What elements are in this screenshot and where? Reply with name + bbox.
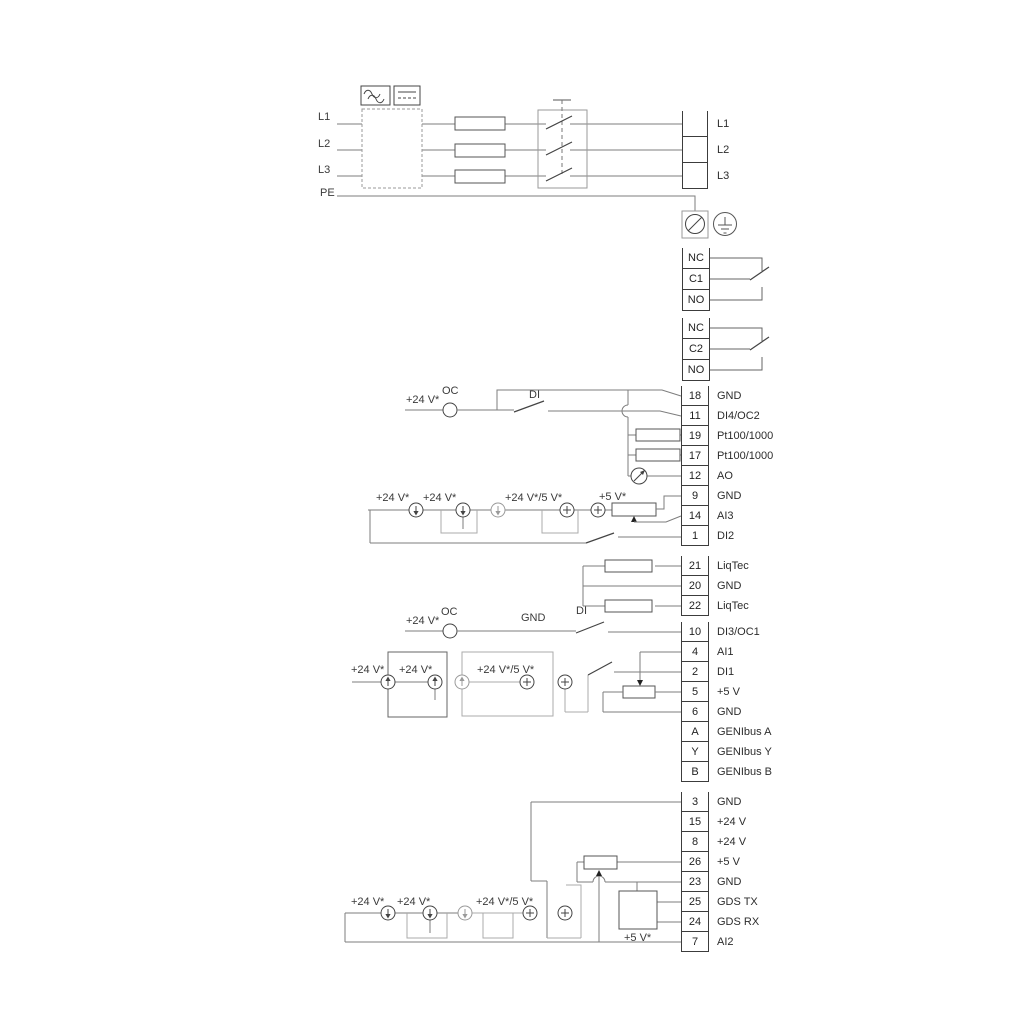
terminal-row: 6 GND (681, 702, 772, 722)
relay2-terminal-block: NC C2 NO (682, 318, 710, 381)
gds-sensor-box (619, 891, 657, 929)
terminal-number: A (681, 722, 709, 742)
terminal-row: 26 +5 V (681, 852, 759, 872)
relay2-contact (710, 328, 769, 370)
terminal-number: 14 (681, 506, 709, 526)
ai1-potentiometer (603, 686, 681, 712)
ai1-sensor-circuit (352, 652, 681, 717)
terminal-number: 6 (681, 702, 709, 722)
terminal-label: Pt100/1000 (717, 450, 773, 462)
terminal-row: 4 AI1 (681, 642, 772, 662)
filter-box (362, 109, 422, 188)
io3-potentiometer (584, 856, 617, 869)
terminal-number: 17 (681, 446, 709, 466)
relay-terminal: NC (682, 318, 710, 339)
current-source-icon (381, 906, 395, 920)
terminal-row: 5 +5 V (681, 682, 772, 702)
current-source-icon (455, 675, 469, 689)
terminal-label: GDS RX (717, 916, 759, 928)
terminal-label: +24 V (717, 816, 746, 828)
label-di: DI (529, 389, 540, 401)
current-source-icon (428, 675, 442, 689)
terminal-row: 21 LiqTec (681, 556, 749, 576)
terminal-number: 9 (681, 486, 709, 506)
terminal-label: Pt100/1000 (717, 430, 773, 442)
terminal-row: 8 +24 V (681, 832, 759, 852)
label-24v-5v: +24 V*/5 V* (477, 664, 534, 676)
io-terminal-block-2: 10 DI3/OC1 4 AI1 2 DI1 5 +5 V 6 GND A GE… (681, 622, 772, 782)
label-24v: +24 V* (397, 896, 430, 908)
current-source-icon (381, 675, 395, 689)
label-24v: +24 V* (351, 664, 384, 676)
label-24v: +24 V* (423, 492, 456, 504)
fuse-l1 (455, 117, 505, 130)
terminal-row: 12 AO (681, 466, 773, 486)
di3-oc1-circuit (405, 622, 681, 638)
terminal-number: 7 (681, 932, 709, 952)
main-switch-contactor (538, 100, 587, 188)
dc-symbol-icon (394, 86, 420, 105)
terminal-row: 23 GND (681, 872, 759, 892)
power-terminal-row: L3 (682, 163, 729, 189)
terminal-row: 3 GND (681, 792, 759, 812)
ground-icon (714, 213, 737, 236)
terminal-box (682, 137, 708, 163)
pt100-resistor-2 (628, 449, 681, 461)
terminal-row: 9 GND (681, 486, 773, 506)
terminal-number: 2 (681, 662, 709, 682)
terminal-label: +24 V (717, 836, 746, 848)
terminal-number: 12 (681, 466, 709, 486)
terminal-label: LiqTec (717, 600, 749, 612)
terminal-row: 17 Pt100/1000 (681, 446, 773, 466)
power-terminal-row: L2 (682, 137, 729, 163)
relay-terminal: NC (682, 248, 710, 269)
label-24v: +24 V* (406, 615, 439, 627)
fuse-l3 (455, 170, 505, 183)
power-terminal-row: L1 (682, 111, 729, 137)
terminal-number: 19 (681, 426, 709, 446)
terminal-number: 3 (681, 792, 709, 812)
terminal-row: A GENIbus A (681, 722, 772, 742)
terminal-row: 7 AI2 (681, 932, 759, 952)
relay-terminal: NO (682, 360, 710, 381)
fuse-l2 (455, 144, 505, 157)
mains-input-wires (337, 124, 695, 211)
signal-source-icon (520, 675, 534, 689)
terminal-label: GENIbus A (717, 726, 771, 738)
current-source-icon (409, 503, 423, 517)
label-24v: +24 V* (351, 896, 384, 908)
signal-source-icon (523, 906, 537, 920)
input-label-pe: PE (320, 187, 335, 199)
terminal-number: 25 (681, 892, 709, 912)
terminal-row: 24 GDS RX (681, 912, 759, 932)
label-24v: +24 V* (399, 664, 432, 676)
input-label-l1: L1 (318, 111, 330, 123)
terminal-row: 14 AI3 (681, 506, 773, 526)
terminal-row: 25 GDS TX (681, 892, 759, 912)
current-source-icon (458, 906, 472, 920)
relay-terminal: C2 (682, 339, 710, 360)
power-terminal-block: L1 L2 L3 (682, 111, 729, 189)
label-5v-gds: +5 V* (624, 932, 651, 944)
terminal-box (682, 163, 708, 189)
ac-symbol-icon (361, 86, 390, 105)
terminal-number: Y (681, 742, 709, 762)
current-source-icon (491, 503, 505, 517)
terminal-label: GND (717, 390, 741, 402)
label-24v-5v: +24 V*/5 V* (505, 492, 562, 504)
current-source-icon (423, 906, 437, 920)
terminal-label: GND (717, 706, 741, 718)
signal-source-icon (591, 503, 605, 517)
terminal-number: 10 (681, 622, 709, 642)
terminal-number: 23 (681, 872, 709, 892)
terminal-row: 18 GND (681, 386, 773, 406)
terminal-label: GND (717, 796, 741, 808)
label-24v: +24 V* (406, 394, 439, 406)
label-gnd: GND (521, 612, 545, 624)
relay-terminal: NO (682, 290, 710, 311)
terminal-number: 8 (681, 832, 709, 852)
terminal-label: +5 V (717, 686, 740, 698)
liqtec-terminal-block: 21 LiqTec 20 GND 22 LiqTec (681, 556, 749, 616)
terminal-row: 19 Pt100/1000 (681, 426, 773, 446)
terminal-label: AO (717, 470, 733, 482)
terminal-number: B (681, 762, 709, 782)
terminal-number: 21 (681, 556, 709, 576)
input-label-l3: L3 (318, 164, 330, 176)
terminal-row: 15 +24 V (681, 812, 759, 832)
terminal-row: 11 DI4/OC2 (681, 406, 773, 426)
terminal-number: 15 (681, 812, 709, 832)
terminal-label: GND (717, 490, 741, 502)
terminal-number: 1 (681, 526, 709, 546)
terminal-label: LiqTec (717, 560, 749, 572)
terminal-number: 5 (681, 682, 709, 702)
terminal-label: +5 V (717, 856, 740, 868)
terminal-row: B GENIbus B (681, 762, 772, 782)
terminal-row: 1 DI2 (681, 526, 773, 546)
label-24v: +24 V* (376, 492, 409, 504)
io-terminal-block-1: 18 GND 11 DI4/OC2 19 Pt100/1000 17 Pt100… (681, 386, 773, 546)
current-source-icon (456, 503, 470, 517)
ao-meter-icon (628, 468, 681, 484)
input-label-l2: L2 (318, 138, 330, 150)
pt100-resistor-1 (628, 429, 681, 441)
terminal-label: L3 (717, 170, 729, 182)
signal-source-icon (558, 675, 572, 689)
terminal-number: 18 (681, 386, 709, 406)
label-di: DI (576, 605, 587, 617)
relay1-terminal-block: NC C1 NO (682, 248, 710, 311)
terminal-number: 4 (681, 642, 709, 662)
terminal-label: GENIbus B (717, 766, 772, 778)
terminal-number: 20 (681, 576, 709, 596)
label-24v-5v: +24 V*/5 V* (476, 896, 533, 908)
terminal-label: L1 (717, 118, 729, 130)
wiring-diagram-page: L1 L2 L3 PE +24 V* OC DI +24 V* +24 V* +… (0, 0, 1024, 1024)
terminal-label: DI2 (717, 530, 734, 542)
wiring-diagram (0, 0, 1024, 1024)
terminal-label: GENIbus Y (717, 746, 772, 758)
terminal-label: DI1 (717, 666, 734, 678)
terminal-number: 22 (681, 596, 709, 616)
terminal-label: AI2 (717, 936, 734, 948)
terminal-label: DI3/OC1 (717, 626, 760, 638)
terminal-label: GND (717, 876, 741, 888)
relay-terminal: C1 (682, 269, 710, 290)
terminal-row: 2 DI1 (681, 662, 772, 682)
label-oc: OC (442, 385, 459, 397)
terminal-row: 10 DI3/OC1 (681, 622, 772, 642)
label-5v: +5 V* (599, 491, 626, 503)
terminal-box (682, 111, 708, 137)
io-terminal-block-3: 3 GND 15 +24 V 8 +24 V 26 +5 V 23 GND 25… (681, 792, 759, 952)
terminal-number: 26 (681, 852, 709, 872)
terminal-label: DI4/OC2 (717, 410, 760, 422)
liqtec-circuit (583, 560, 681, 612)
terminal-label: AI3 (717, 510, 734, 522)
terminal-label: GND (717, 580, 741, 592)
label-oc: OC (441, 606, 458, 618)
terminal-number: 11 (681, 406, 709, 426)
terminal-row: 20 GND (681, 576, 749, 596)
terminal-label: GDS TX (717, 896, 758, 908)
terminal-row: 22 LiqTec (681, 596, 749, 616)
relay1-contact (710, 258, 769, 300)
signal-source-icon (558, 906, 572, 920)
terminal-label: L2 (717, 144, 729, 156)
terminal-label: AI1 (717, 646, 734, 658)
pe-screw-terminal-icon (682, 211, 708, 238)
terminal-number: 24 (681, 912, 709, 932)
signal-source-icon (560, 503, 574, 517)
terminal-row: Y GENIbus Y (681, 742, 772, 762)
